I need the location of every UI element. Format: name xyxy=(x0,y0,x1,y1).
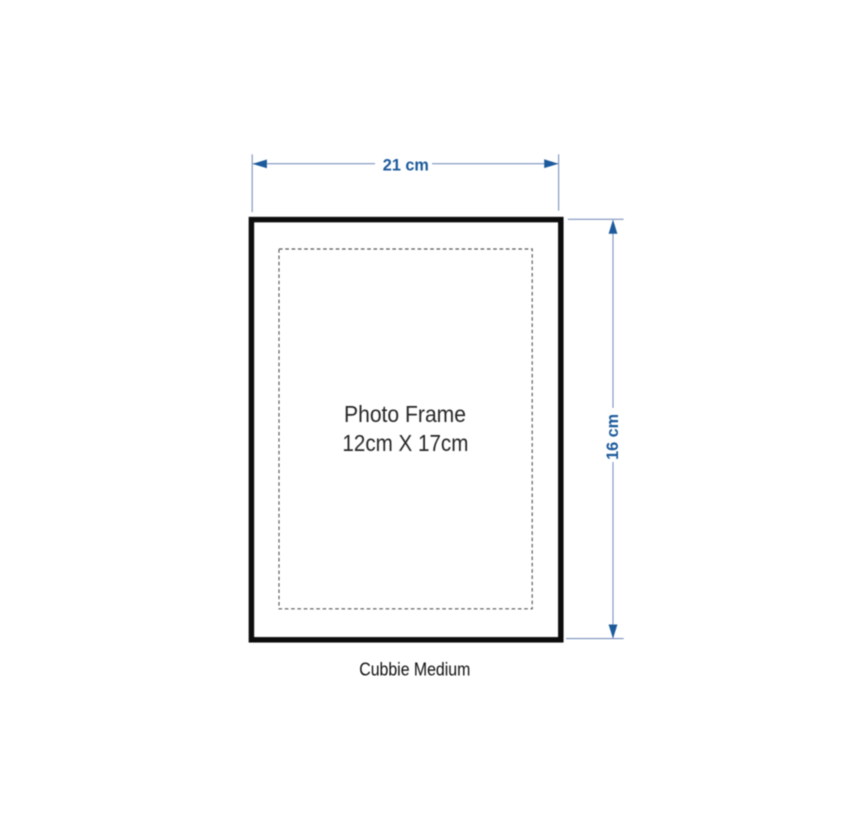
svg-text:12cm X 17cm: 12cm X 17cm xyxy=(342,430,468,456)
svg-text:21 cm: 21 cm xyxy=(383,155,429,174)
svg-text:Photo Frame: Photo Frame xyxy=(344,401,466,427)
svg-text:16 cm: 16 cm xyxy=(603,414,622,460)
svg-text:Cubbie Medium: Cubbie Medium xyxy=(359,659,470,680)
